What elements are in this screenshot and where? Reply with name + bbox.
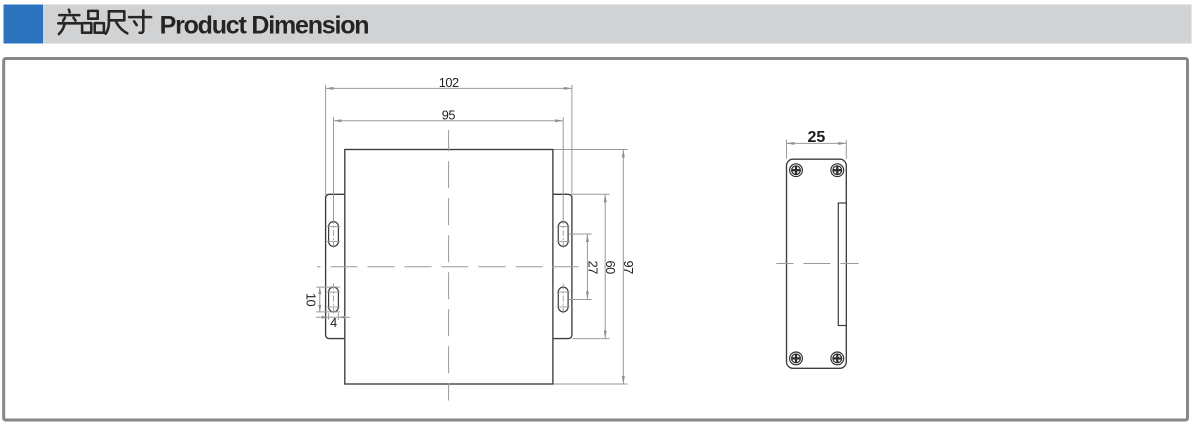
svg-text:10: 10 <box>304 293 319 307</box>
svg-text:27: 27 <box>585 261 600 275</box>
svg-text:60: 60 <box>603 260 618 274</box>
svg-text:25: 25 <box>808 129 826 146</box>
svg-text:102: 102 <box>439 75 459 90</box>
svg-text:Product Dimension: Product Dimension <box>160 11 369 39</box>
svg-text:95: 95 <box>442 108 456 123</box>
svg-text:97: 97 <box>621 260 636 274</box>
svg-text:4: 4 <box>330 315 337 330</box>
